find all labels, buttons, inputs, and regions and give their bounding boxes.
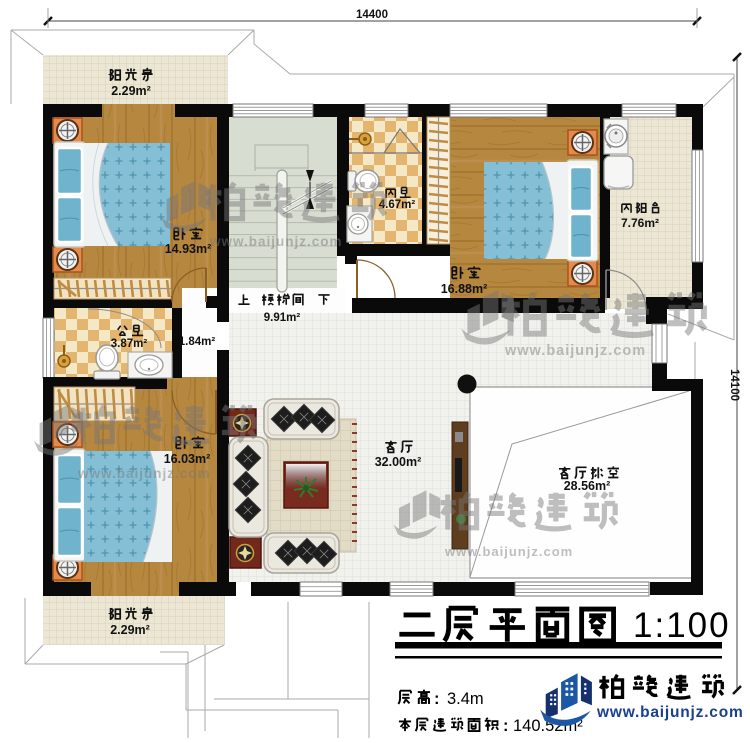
svg-text:16.88m²: 16.88m² (441, 282, 488, 296)
svg-text:14.93m²: 14.93m² (165, 242, 212, 256)
svg-text:16.03m²: 16.03m² (164, 452, 211, 466)
svg-text:1.84m²: 1.84m² (179, 336, 216, 348)
svg-text:2.29m²: 2.29m² (110, 623, 150, 637)
svg-text:www.baijunjz.com: www.baijunjz.com (504, 343, 646, 359)
svg-text:www.baijunjz.com: www.baijunjz.com (77, 466, 211, 481)
svg-text:3.87m²: 3.87m² (111, 338, 148, 350)
svg-text::: : (434, 690, 440, 708)
svg-text:3.4m: 3.4m (447, 690, 484, 708)
svg-text:14100: 14100 (728, 369, 740, 401)
svg-text:2.29m²: 2.29m² (111, 84, 151, 98)
svg-text:7.76m²: 7.76m² (621, 216, 659, 230)
svg-text:32.00m²: 32.00m² (375, 455, 422, 469)
svg-text:28.56m²: 28.56m² (564, 479, 611, 493)
svg-text::: : (503, 717, 509, 735)
svg-text:1:100: 1:100 (633, 606, 731, 645)
svg-text:14400: 14400 (356, 9, 388, 21)
svg-text:www.baijunjz.com: www.baijunjz.com (596, 704, 744, 721)
svg-text:9.91m²: 9.91m² (264, 312, 301, 324)
svg-text:www.baijunjz.com: www.baijunjz.com (209, 234, 343, 249)
svg-text:www.baijunjz.com: www.baijunjz.com (444, 544, 573, 559)
